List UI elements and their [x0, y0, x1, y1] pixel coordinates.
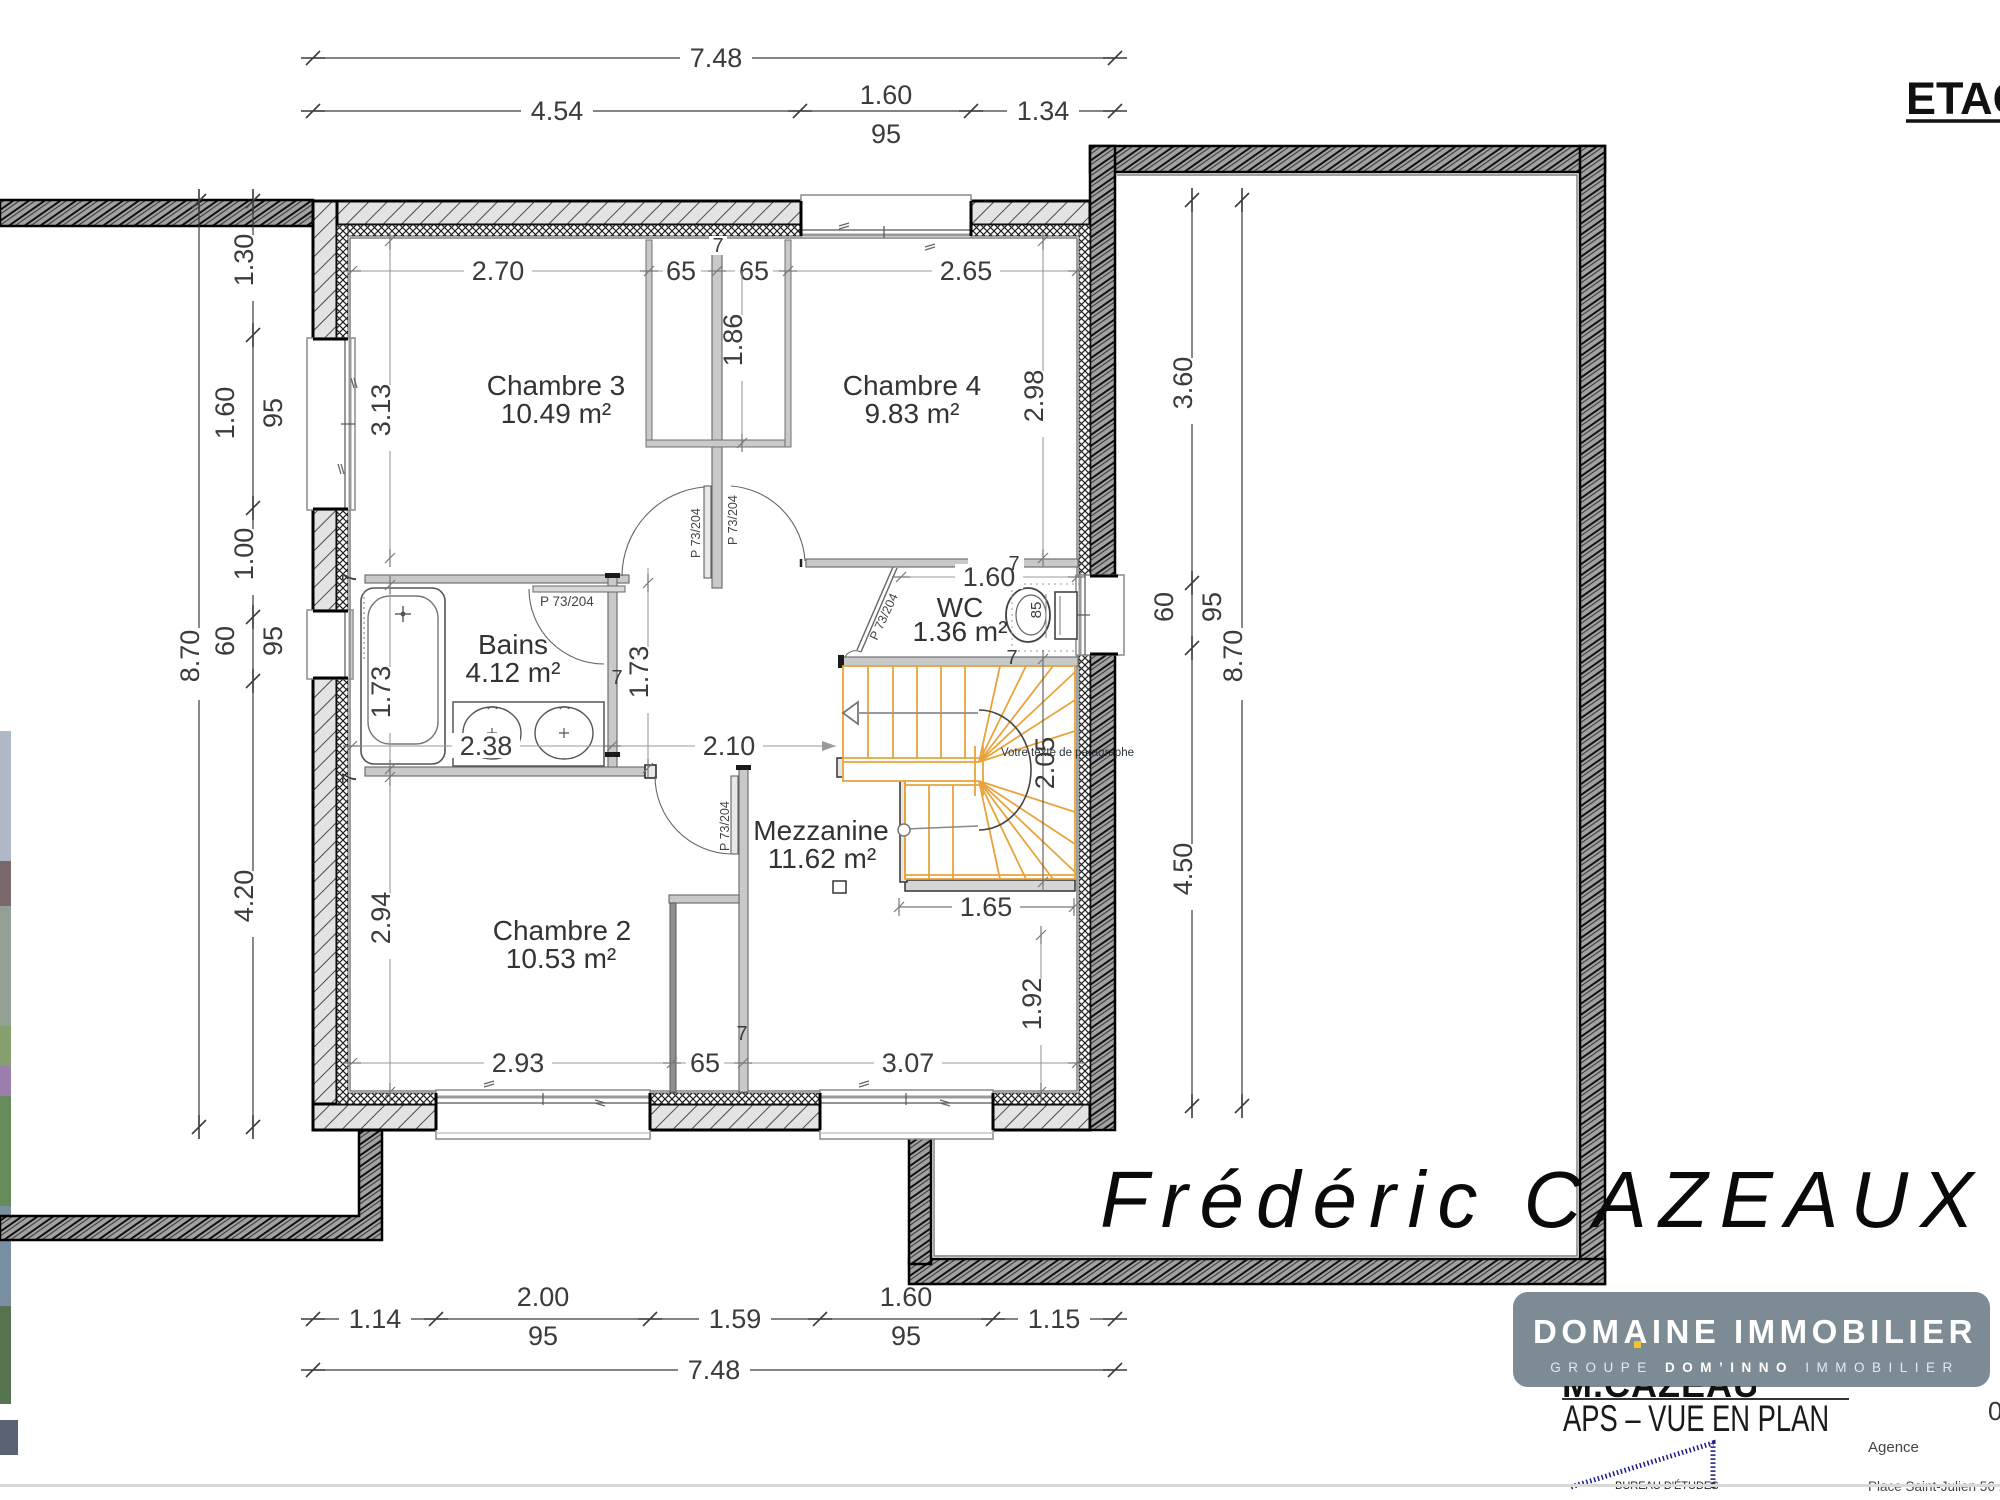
svg-text:3.13: 3.13	[366, 384, 396, 437]
svg-text:2.93: 2.93	[492, 1048, 545, 1078]
svg-text:Chambre 3: Chambre 3	[487, 370, 626, 401]
svg-text:7: 7	[736, 1023, 747, 1045]
svg-text:95: 95	[258, 398, 288, 428]
svg-text:Chambre 2: Chambre 2	[493, 915, 632, 946]
svg-text:8.70: 8.70	[1218, 630, 1248, 683]
svg-text:1.34: 1.34	[1017, 96, 1070, 126]
svg-text:11.62 m²: 11.62 m²	[768, 843, 876, 874]
svg-text:1.73: 1.73	[624, 646, 654, 699]
svg-text:2.65: 2.65	[940, 256, 993, 286]
svg-text:4.20: 4.20	[229, 870, 259, 923]
svg-text:1.86: 1.86	[718, 314, 748, 367]
svg-text:7: 7	[1008, 553, 1019, 575]
svg-text:1.30: 1.30	[229, 234, 259, 287]
svg-text:1.60: 1.60	[963, 562, 1016, 592]
svg-text:2.70: 2.70	[472, 256, 525, 286]
svg-text:Mezzanine: Mezzanine	[753, 815, 888, 846]
svg-text:APS – VUE EN PLAN: APS – VUE EN PLAN	[1563, 1398, 1829, 1439]
svg-text:1.65: 1.65	[960, 892, 1013, 922]
svg-text:1.73: 1.73	[366, 666, 396, 719]
svg-text:1.15: 1.15	[1028, 1304, 1081, 1334]
svg-text:7: 7	[611, 667, 622, 689]
svg-text:1.36 m²: 1.36 m²	[913, 616, 1008, 647]
svg-text:GROUPE DOM’INNO IMMOBILIER: GROUPE DOM’INNO IMMOBILIER	[1550, 1360, 1960, 1375]
svg-text:7.48: 7.48	[688, 1355, 741, 1385]
svg-text:10.49 m²: 10.49 m²	[501, 398, 612, 429]
svg-text:P 73/204: P 73/204	[540, 594, 594, 609]
svg-text:DOMAINE IMMOBILIER: DOMAINE IMMOBILIER	[1533, 1313, 1977, 1350]
svg-text:Chambre 4: Chambre 4	[843, 370, 982, 401]
svg-text:60: 60	[1149, 592, 1179, 622]
svg-text:65: 65	[690, 1048, 720, 1078]
svg-text:3.60: 3.60	[1168, 357, 1198, 410]
svg-text:3.07: 3.07	[882, 1048, 935, 1078]
svg-text:P 73/204: P 73/204	[726, 495, 740, 545]
svg-text:95: 95	[891, 1321, 921, 1351]
svg-text:8.70: 8.70	[175, 630, 205, 683]
svg-text:Agence: Agence	[1868, 1439, 1919, 1456]
svg-text:9.83 m²: 9.83 m²	[865, 398, 960, 429]
svg-text:4.50: 4.50	[1168, 843, 1198, 896]
svg-text:95: 95	[258, 626, 288, 656]
svg-text:2.38: 2.38	[460, 731, 513, 761]
svg-text:1.59: 1.59	[709, 1304, 762, 1334]
svg-text:1.60: 1.60	[880, 1282, 933, 1312]
svg-text:7: 7	[339, 572, 361, 583]
svg-text:P 73/204: P 73/204	[718, 801, 732, 851]
svg-text:7: 7	[712, 235, 723, 257]
svg-text:65: 65	[739, 256, 769, 286]
svg-text:1.92: 1.92	[1017, 978, 1047, 1031]
svg-text:60: 60	[210, 626, 240, 656]
svg-text:2.94: 2.94	[366, 892, 396, 945]
svg-text:95: 95	[528, 1321, 558, 1351]
svg-text:10.53 m²: 10.53 m²	[506, 943, 617, 974]
svg-text:Frédéric CAZEAUX: Frédéric CAZEAUX	[1100, 1155, 1985, 1244]
svg-text:7: 7	[1006, 647, 1017, 669]
svg-text:65: 65	[666, 256, 696, 286]
svg-text:0: 0	[1988, 1396, 2000, 1426]
svg-text:1.60: 1.60	[210, 387, 240, 440]
svg-text:7.48: 7.48	[690, 43, 743, 73]
svg-text:2.10: 2.10	[703, 731, 756, 761]
svg-text:1.00: 1.00	[229, 528, 259, 581]
svg-text:2.98: 2.98	[1019, 370, 1049, 423]
svg-text:Bains: Bains	[478, 629, 548, 660]
svg-text:95: 95	[1197, 592, 1227, 622]
svg-text:85: 85	[1028, 602, 1045, 619]
svg-text:1.14: 1.14	[349, 1304, 402, 1334]
svg-text:95: 95	[871, 119, 901, 149]
svg-text:7: 7	[339, 772, 361, 783]
svg-text:ETAGE: ETAGE	[1906, 73, 2000, 124]
svg-text:2.00: 2.00	[517, 1282, 570, 1312]
svg-text:P 73/204: P 73/204	[689, 508, 703, 558]
svg-text:4.54: 4.54	[531, 96, 584, 126]
svg-text:Votre texte de paragraphe: Votre texte de paragraphe	[1001, 747, 1134, 759]
svg-text:4.12 m²: 4.12 m²	[466, 657, 561, 688]
svg-text:1.60: 1.60	[860, 80, 913, 110]
svg-text:2.05: 2.05	[1030, 737, 1060, 790]
